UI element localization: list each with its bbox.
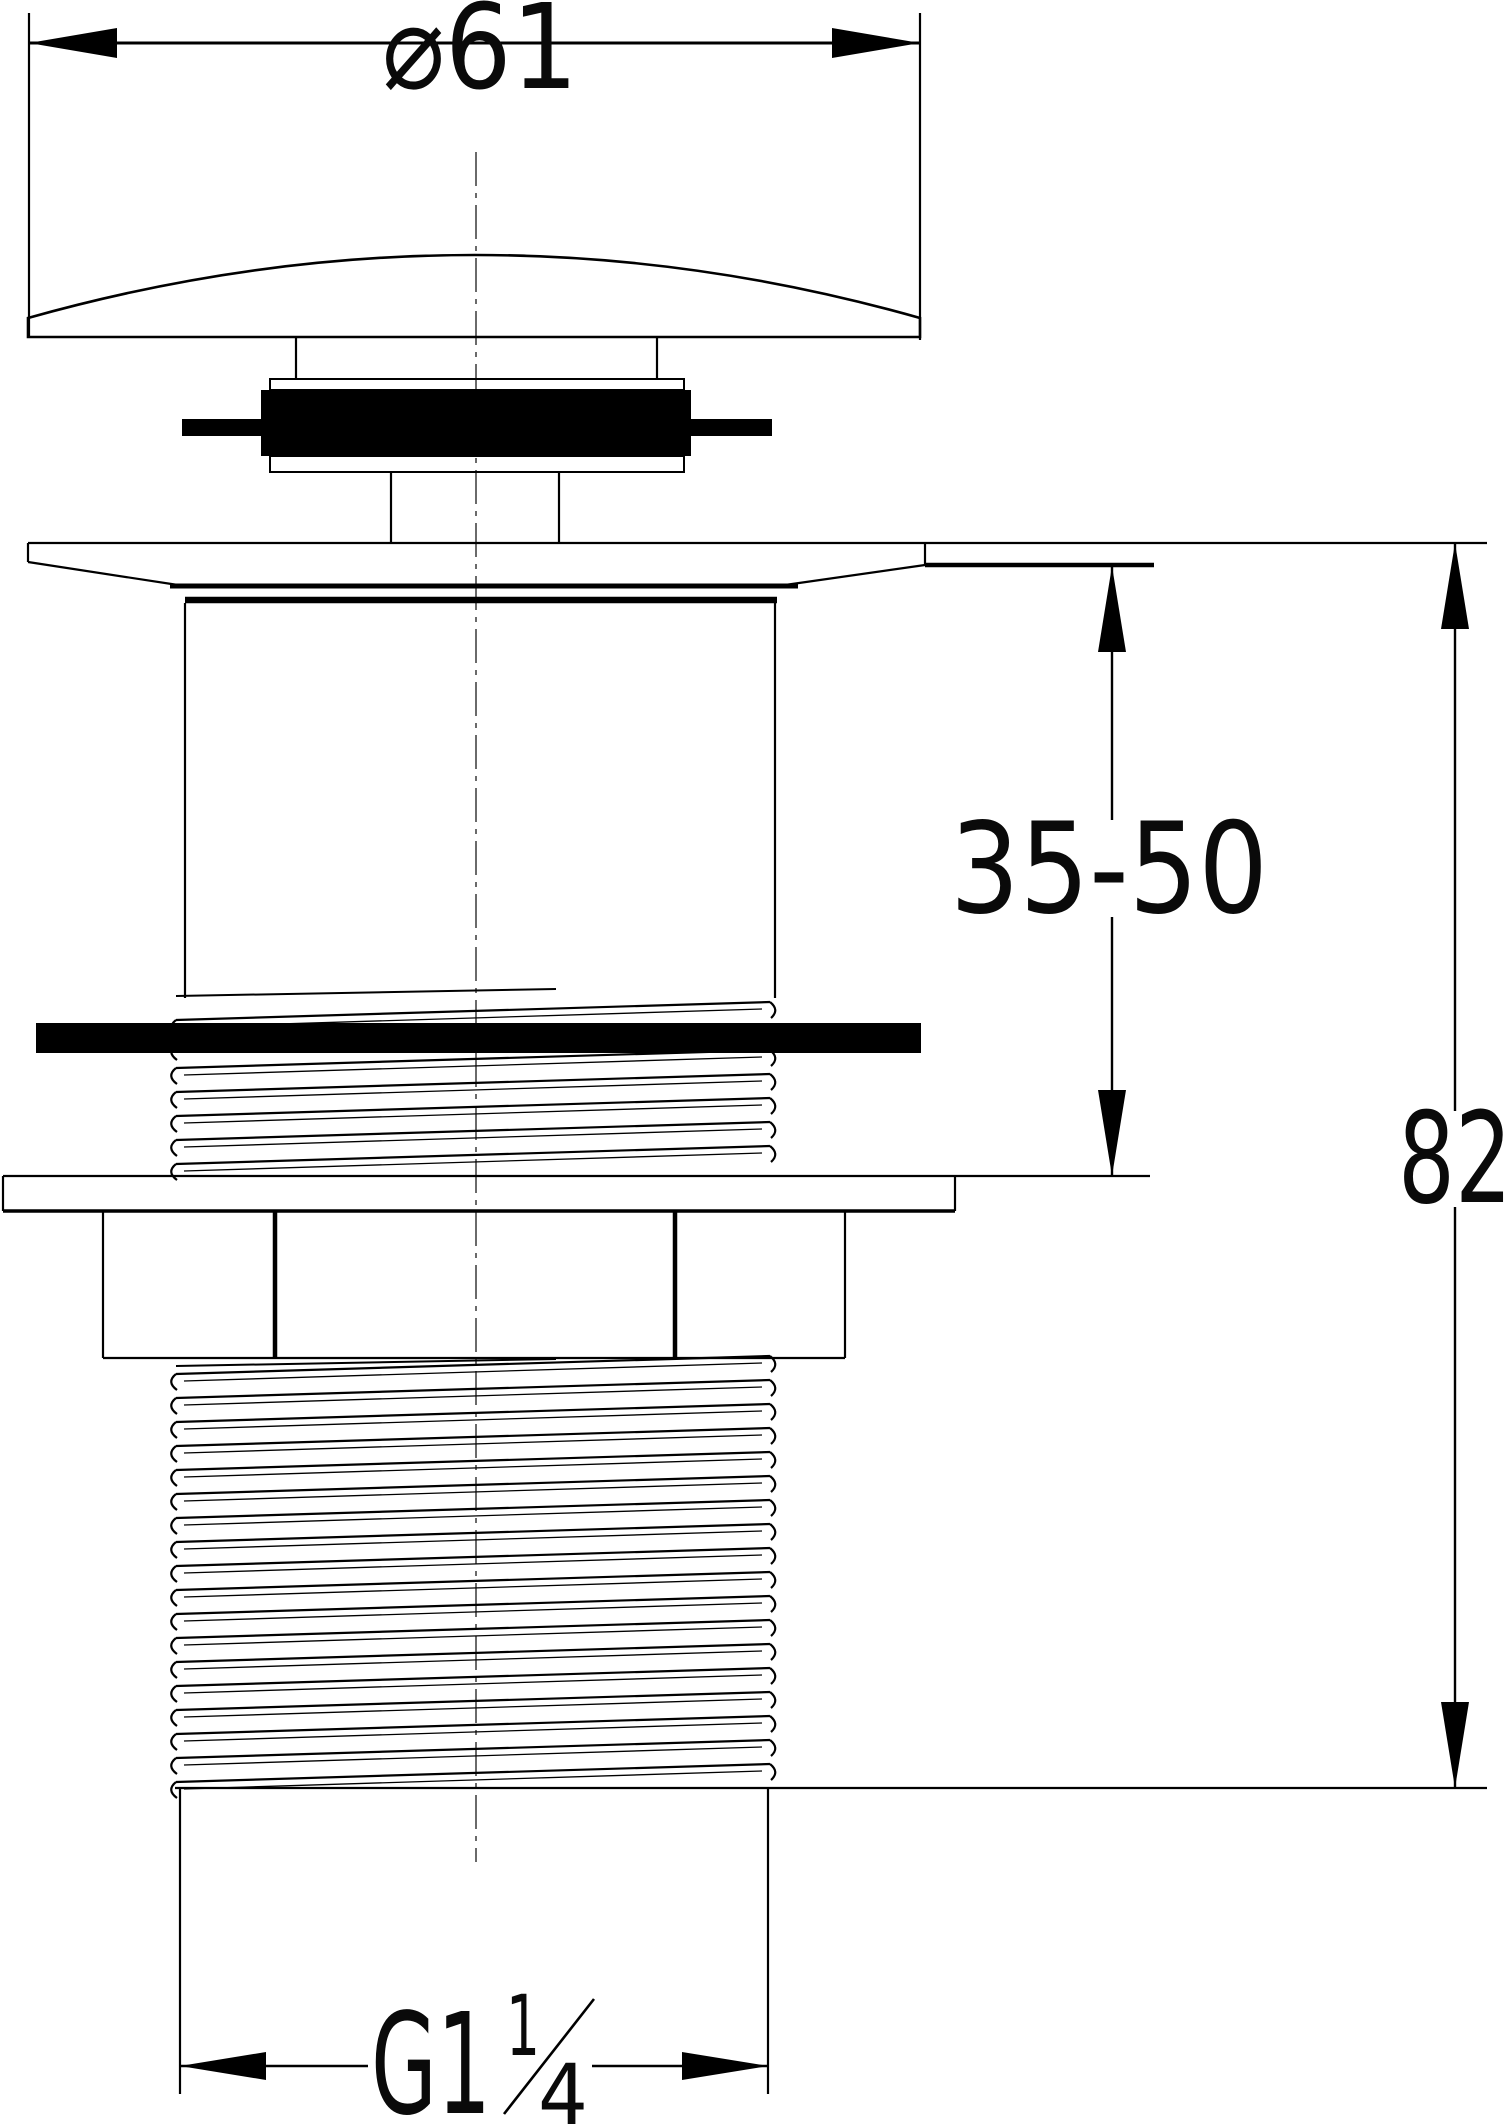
thread-line <box>770 1668 775 1684</box>
thread-line <box>770 1002 775 1018</box>
overall-height-label: 82 <box>1398 1085 1508 1232</box>
seal-pin-right <box>691 419 772 436</box>
dimension-diameter: ⌀61 <box>29 0 920 340</box>
thread-line <box>171 1614 177 1630</box>
thread-line <box>171 1092 177 1108</box>
thread-line <box>770 1122 775 1138</box>
thread-line <box>171 1494 177 1510</box>
seal-assembly <box>182 379 772 543</box>
thread-line <box>770 1146 775 1162</box>
thread-line <box>171 1542 177 1558</box>
mounting-plate <box>3 1176 1150 1211</box>
lower-thread-section <box>171 1356 775 1798</box>
flange-slant-right <box>778 565 925 586</box>
seal-pin-left <box>182 419 261 436</box>
arrowhead-right-icon <box>682 2052 768 2080</box>
thread-line <box>171 1686 177 1702</box>
cap-outline <box>28 255 920 337</box>
thread-size-prefix: G1 <box>371 1984 491 2126</box>
seal-bottom-washer <box>270 456 684 472</box>
arrowhead-left-icon <box>180 2052 266 2080</box>
thread-line <box>171 1140 177 1156</box>
thread-fraction-denominator: 4 <box>538 2046 588 2126</box>
upper-thread-section <box>171 989 775 1180</box>
thread-line <box>171 1638 177 1654</box>
thread-line <box>171 1470 177 1486</box>
thread-line <box>770 1692 775 1708</box>
thread-line <box>770 1476 775 1492</box>
thread-line <box>770 1740 775 1756</box>
top-flange <box>28 543 1487 600</box>
flange-slant-left <box>28 562 178 585</box>
thread-line <box>171 1446 177 1462</box>
thread-line <box>171 1734 177 1750</box>
thread-line <box>770 1500 775 1516</box>
arrowhead-right-icon <box>832 28 920 58</box>
arrowhead-down-icon <box>1098 1090 1126 1176</box>
thread-line <box>770 1644 775 1660</box>
arrowhead-down-icon <box>1441 1702 1469 1788</box>
seal-top-washer <box>270 379 684 390</box>
arrowhead-left-icon <box>29 28 117 58</box>
arrowhead-up-icon <box>1441 543 1469 629</box>
thread-line <box>770 1596 775 1612</box>
thread-line <box>171 1782 177 1798</box>
drawing-page: ⌀61 <box>0 0 1508 2126</box>
thread-line <box>770 1572 775 1588</box>
seal-gasket-body <box>261 390 691 456</box>
dimension-clamp-range: 35-50 <box>950 566 1268 1176</box>
diameter-label: ⌀61 <box>382 0 578 116</box>
thread-line <box>770 1524 775 1540</box>
thread-line <box>171 1068 177 1084</box>
thread-line <box>171 1164 177 1180</box>
rubber-seal-ring <box>36 1023 921 1053</box>
thread-line <box>770 1098 775 1114</box>
thread-line <box>171 1566 177 1582</box>
thread-line <box>770 1452 775 1468</box>
thread-line <box>176 989 556 996</box>
thread-fraction-numerator: 1 <box>506 1977 540 2075</box>
thread-line <box>770 1404 775 1420</box>
thread-line <box>770 1074 775 1090</box>
dimension-thread-size: G1 1 4 <box>180 1977 768 2126</box>
thread-line <box>770 1548 775 1564</box>
dimension-overall-height: 82 <box>1398 543 1508 1788</box>
thread-line <box>770 1380 775 1396</box>
hex-nut <box>103 1211 845 1358</box>
thread-line <box>171 1398 177 1414</box>
thread-line <box>171 1710 177 1726</box>
thread-line <box>171 1590 177 1606</box>
technical-drawing: ⌀61 <box>0 0 1508 2126</box>
thread-line <box>171 1422 177 1438</box>
thread-line <box>171 1662 177 1678</box>
clamp-range-label: 35-50 <box>950 795 1268 942</box>
thread-line <box>770 1764 775 1780</box>
thread-line <box>770 1428 775 1444</box>
thread-line <box>171 1116 177 1132</box>
thread-line <box>171 1374 177 1390</box>
arrowhead-up-icon <box>1098 566 1126 652</box>
thread-line <box>770 1716 775 1732</box>
thread-line <box>171 1758 177 1774</box>
thread-line <box>171 1518 177 1534</box>
thread-line <box>770 1620 775 1636</box>
upper-body <box>185 603 775 998</box>
